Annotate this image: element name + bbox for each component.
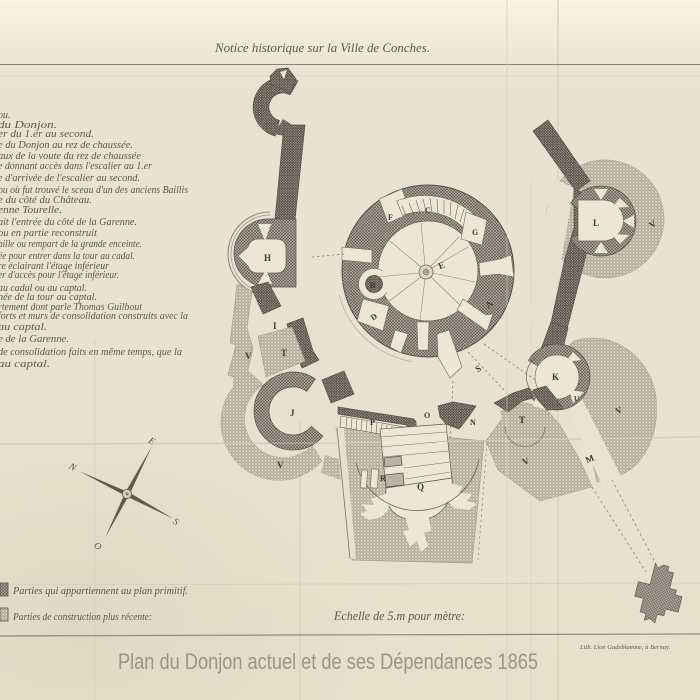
svg-text:T: T [281, 348, 287, 358]
svg-text:e donnant accès dans l'escalie: e donnant accès dans l'escalier au 1.er [0, 161, 152, 172]
svg-text:ou en partie reconstruit: ou en partie reconstruit [0, 228, 97, 239]
svg-text:e de la Garenne.: e de la Garenne. [0, 334, 69, 345]
svg-text:de consolidation faits en même: de consolidation faits en même temps, qu… [0, 347, 182, 358]
svg-text:ait l'entrée du côté de la Gar: ait l'entrée du côté de la Garenne. [0, 217, 137, 228]
svg-text:H: H [264, 253, 271, 263]
svg-text:e du Donjon au rez de chaussée: e du Donjon au rez de chaussée. [0, 140, 133, 151]
svg-text:C: C [425, 206, 431, 215]
svg-text:I: I [273, 321, 277, 331]
svg-text:O: O [424, 411, 430, 420]
svg-text:aille ou rempart de la grande: aille ou rempart de la grande enceinte. [0, 239, 142, 250]
svg-text:Notice historique sur la Ville: Notice historique sur la Ville de Conche… [214, 40, 430, 55]
svg-text:G: G [472, 228, 478, 237]
svg-text:K: K [552, 372, 559, 382]
svg-text:P: P [370, 418, 375, 427]
svg-text:Q: Q [417, 482, 424, 492]
svg-text:er d'accès pour l'étage inféri: er d'accès pour l'étage inférieur. [0, 270, 119, 281]
svg-text:T: T [519, 415, 525, 425]
svg-text:au captal.: au captal. [0, 359, 50, 370]
svg-text:enne Tourelle.: enne Tourelle. [0, 205, 62, 216]
svg-text:Parties de construction plus r: Parties de construction plus récente: [12, 611, 152, 623]
svg-text:R: R [380, 474, 386, 483]
svg-text:V: V [277, 460, 284, 470]
svg-text:er du 1.er au second.: er du 1.er au second. [0, 129, 94, 140]
svg-text:Plan du Donjon actuel et de se: Plan du Donjon actuel et de ses Dépendan… [118, 649, 538, 674]
svg-text:e d'arrivée de l'escalier au s: e d'arrivée de l'escalier au second. [0, 173, 140, 184]
svg-text:F: F [388, 213, 393, 222]
svg-text:au captal.: au captal. [0, 322, 47, 333]
svg-text:J: J [290, 408, 295, 418]
svg-text:Echelle de 5.m pour mètre:: Echelle de 5.m pour mètre: [333, 608, 465, 623]
svg-text:Parties qui appartiennent au p: Parties qui appartiennent au plan primit… [12, 585, 188, 597]
svg-text:Lith. Lion Gadeblamme, à Berna: Lith. Lion Gadeblamme, à Bernay. [579, 644, 670, 651]
svg-text:forts et murs de consolidation: forts et murs de consolidation construit… [0, 311, 188, 322]
svg-text:L: L [593, 218, 599, 228]
svg-text:B: B [370, 281, 376, 290]
svg-text:V: V [245, 351, 252, 361]
svg-text:U: U [574, 395, 579, 403]
svg-text:N: N [470, 418, 476, 427]
